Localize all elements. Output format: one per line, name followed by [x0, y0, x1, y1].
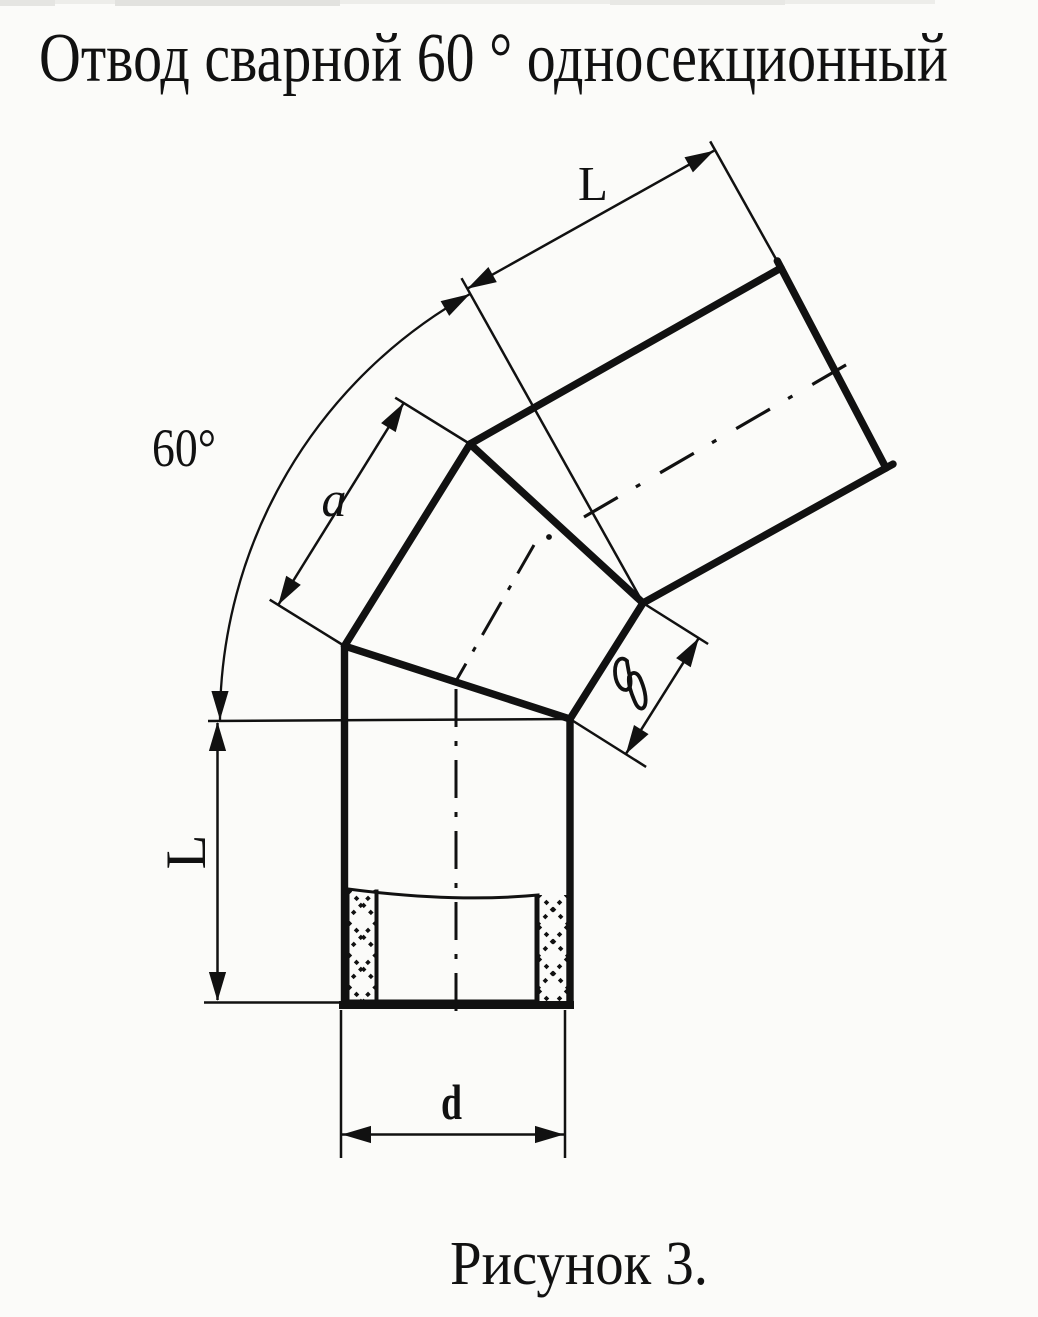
svg-text:a: a — [322, 471, 347, 527]
svg-text:L: L — [155, 835, 218, 870]
svg-text:Рисунок 3.: Рисунок 3. — [450, 1230, 708, 1298]
svg-text:L: L — [578, 156, 608, 211]
svg-text:Отвод сварной 60 ° односекцион: Отвод сварной 60 ° односекционный — [39, 20, 948, 97]
svg-text:d: d — [441, 1074, 462, 1130]
svg-text:60°: 60° — [152, 418, 216, 478]
